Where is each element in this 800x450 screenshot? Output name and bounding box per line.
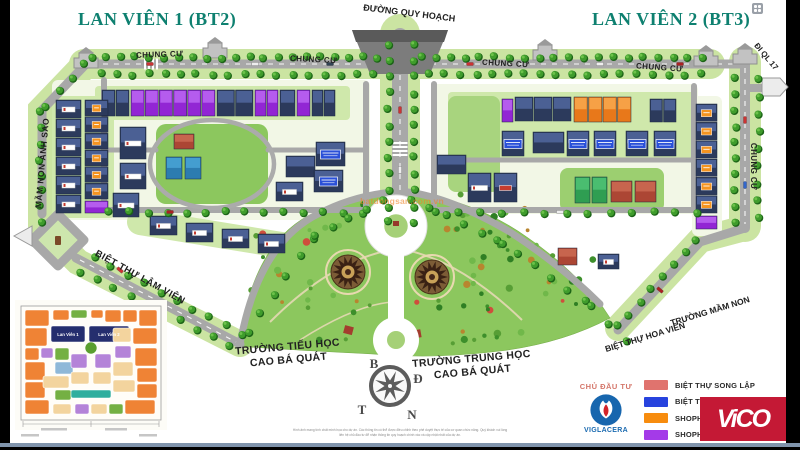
compass-west-label: T <box>358 402 367 417</box>
legend-swatch-shophouse-1 <box>644 413 668 423</box>
inset-graphics <box>15 300 167 437</box>
title-lan-vien-2: LAN VIÊN 2 (BT3) <box>592 9 750 30</box>
bottom-divider <box>0 443 800 447</box>
inset-overview-map: Lan Viên 1 Lan Viên 2 <box>13 296 169 442</box>
legend-swatch-shophouse-2 <box>644 430 668 440</box>
screenshot-stage: B Đ N T Hình ảnh mang tính chất minh họa… <box>0 0 800 450</box>
legend-swatch-don-lap <box>644 397 668 407</box>
disclaimer-line1: Hình ảnh mang tính chất minh họa cho dự … <box>293 428 508 432</box>
inset-lan-vien-1: Lan Viên 1 <box>57 332 79 337</box>
label-chung-cu-1: CHUNG CƯ <box>136 49 183 60</box>
vico-logo: ViCO <box>700 397 786 441</box>
apps-grid-icon[interactable] <box>752 3 763 14</box>
legend-label-song-lap: BIỆT THỰ SONG LẬP <box>675 381 755 390</box>
compass-south-label: N <box>407 407 417 422</box>
label-chung-cu-right: CHUNG CƯ <box>749 143 758 190</box>
developer-name: VIGLACERA <box>568 427 644 434</box>
legend-swatch-song-lap <box>644 380 668 390</box>
inset-map-svg: Lan Viên 1 Lan Viên 2 <box>13 296 169 442</box>
title-lan-vien-1: LAN VIÊN 1 (BT2) <box>78 9 236 30</box>
vico-logo-text: ViCO <box>717 405 769 434</box>
viglacera-logo-icon <box>589 393 623 427</box>
legend-item-song-lap: BIỆT THỰ SONG LẬP <box>644 380 755 390</box>
developer-heading: CHỦ ĐẦU TƯ <box>568 382 644 391</box>
disclaimer-line2: liên hệ chủ đầu tư để nhận thông tin quy… <box>339 433 461 437</box>
developer-block: CHỦ ĐẦU TƯ VIGLACERA <box>568 382 644 434</box>
watermark: batdongsan.com.vn <box>352 196 452 206</box>
inset-lan-vien-2: Lan Viên 2 <box>98 332 120 337</box>
